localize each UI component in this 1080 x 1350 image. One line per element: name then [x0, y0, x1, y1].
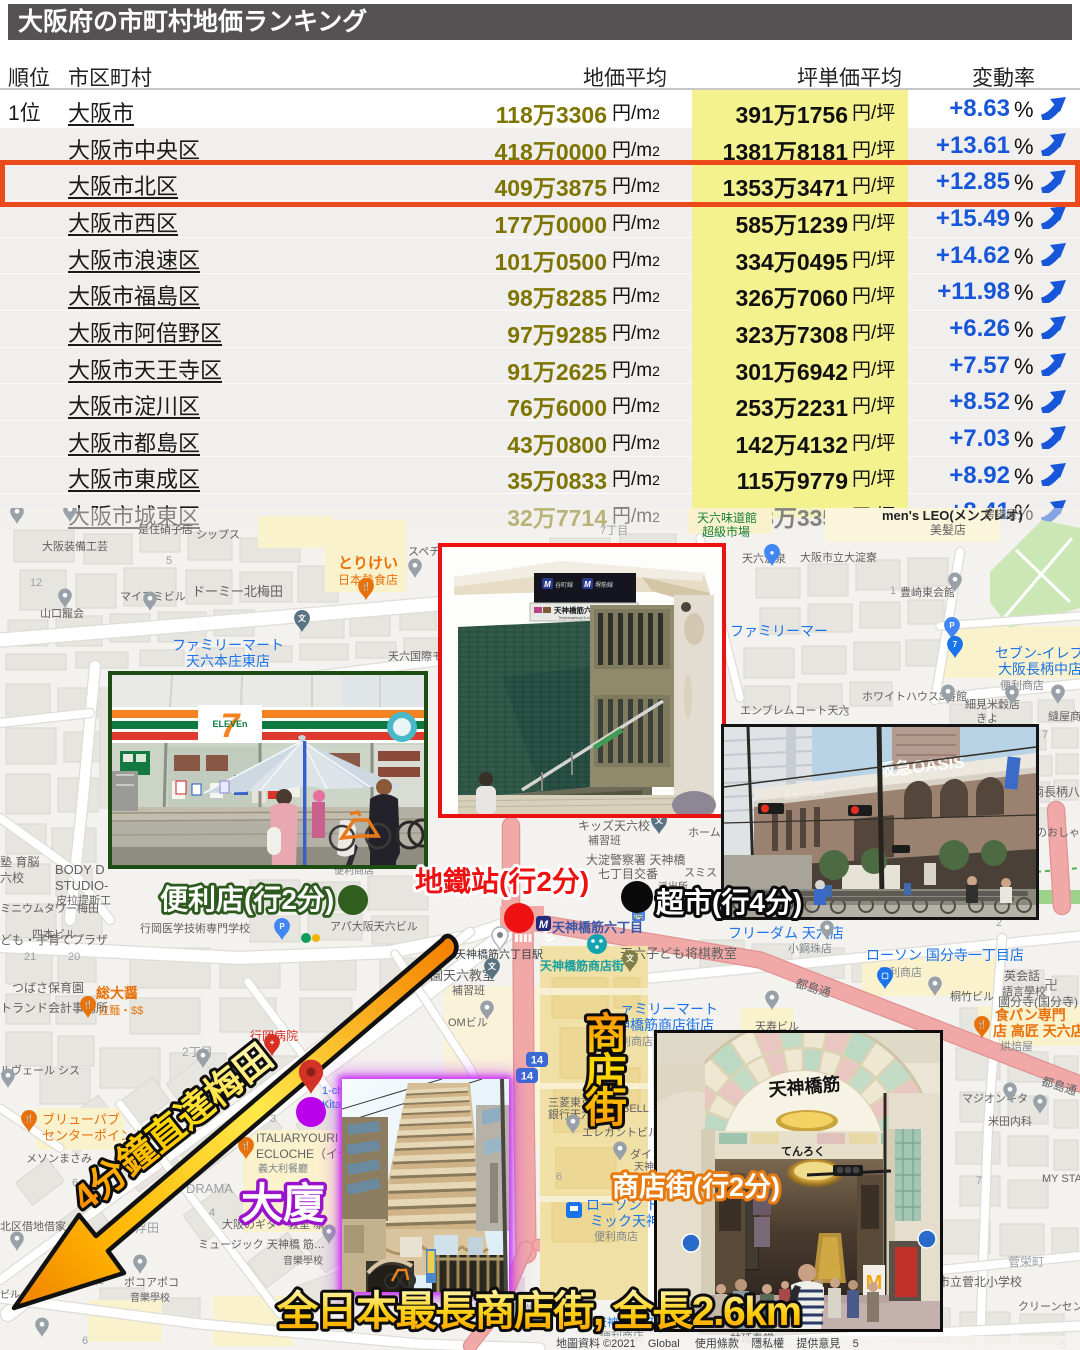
svg-text:派出所: 派出所: [658, 880, 688, 893]
svg-text:5: 5: [1060, 1339, 1066, 1350]
svg-text:文: 文: [626, 953, 634, 963]
svg-text:縫屋商店: 縫屋商店: [1048, 709, 1080, 723]
svg-text:▢: ▢: [881, 971, 888, 980]
svg-text:ミュージック 天神橋 筋…: ミュージック 天神橋 筋…: [198, 1237, 325, 1251]
svg-text:20: 20: [68, 951, 80, 963]
svg-text:両長柄八幡: 両長柄八幡: [1032, 784, 1080, 799]
svg-text:BELL: BELL: [622, 1103, 649, 1115]
svg-text:大阪装備工芸: 大阪装備工芸: [42, 539, 108, 553]
svg-text:義大利餐廳: 義大利餐廳: [258, 1162, 308, 1175]
svg-text:大阪のギター教室 凛: 大阪のギター教室 凛: [222, 1217, 324, 1231]
svg-text:卍: 卍: [1044, 977, 1058, 993]
svg-text:スミス: スミス: [684, 867, 717, 879]
svg-text:ども・子育てプラザ: ども・子育てプラザ: [0, 932, 108, 947]
svg-text:烘焙屋: 烘焙屋: [1000, 1039, 1033, 1053]
svg-text:天六本庄東店: 天六本庄東店: [186, 653, 270, 669]
svg-text:クリーンセン…: クリーンセン…: [1018, 1300, 1080, 1313]
svg-text:3: 3: [843, 707, 849, 719]
svg-text:食パン専門: 食パン専門: [995, 1007, 1066, 1023]
svg-text:小鋼珠店: 小鋼珠店: [788, 941, 832, 955]
svg-text:7: 7: [1042, 729, 1048, 741]
svg-text:●: ●: [770, 548, 775, 557]
svg-text:つばさ保育園: つばさ保育園: [12, 980, 84, 995]
svg-text:6: 6: [82, 1335, 88, 1347]
svg-text:超級市場: 超級市場: [702, 524, 750, 539]
svg-text:三菱東京UF: 三菱東京UF: [548, 1095, 607, 1109]
svg-text:天神橋筋六丁目: 天神橋筋六丁目: [552, 920, 643, 935]
svg-text:P: P: [279, 922, 284, 931]
svg-text:文: 文: [298, 613, 306, 623]
svg-text:豊崎東会館: 豊崎東会館: [900, 585, 955, 599]
svg-text:大阪長柄中店: 大阪長柄中店: [998, 661, 1080, 677]
svg-text:是住硝子店: 是住硝子店: [138, 522, 193, 536]
svg-text:ファミリーマー: ファミリーマー: [730, 623, 828, 639]
svg-text:菅栄町: 菅栄町: [1008, 1255, 1044, 1269]
svg-text:1-ch: 1-ch: [322, 1085, 343, 1097]
svg-text:堺筋線: 堺筋線: [595, 581, 613, 589]
svg-text:キッズ天六校: キッズ天六校: [578, 818, 650, 833]
svg-text:14: 14: [531, 1055, 544, 1067]
svg-text:P: P: [949, 621, 954, 630]
svg-text:Kita: Kita: [322, 1099, 342, 1111]
svg-text:6: 6: [556, 1171, 562, 1183]
svg-text:🍴: 🍴: [24, 1113, 34, 1123]
svg-text:ブリューパブ: ブリューパブ: [42, 1112, 120, 1127]
svg-text:ファミリーマート: ファミリーマート: [172, 637, 284, 653]
svg-text:総大醤: 総大醤: [96, 985, 138, 1001]
svg-text:ポコアポコ: ポコアポコ: [124, 1276, 179, 1289]
svg-text:12: 12: [30, 577, 42, 589]
svg-text:アパ大阪天六ビル: アパ大阪天六ビル: [330, 919, 418, 933]
svg-text:マジオンキタ: マジオンキタ: [962, 1092, 1028, 1105]
svg-text:M: M: [539, 919, 549, 931]
svg-text:STUDIO-: STUDIO-: [55, 878, 108, 893]
svg-text:桐竹ビル: 桐竹ビル: [950, 989, 994, 1003]
svg-text:英会話: 英会話: [1004, 968, 1040, 983]
svg-text:とりけい: とりけい: [338, 555, 398, 572]
svg-text:皮拉提斯工: 皮拉提斯工: [56, 893, 111, 907]
svg-text:便利商店: 便利商店: [600, 1329, 644, 1343]
svg-text:🚌: 🚌: [633, 910, 644, 920]
svg-text:5: 5: [166, 555, 172, 567]
svg-text:利商店: 利商店: [620, 1034, 653, 1048]
svg-text:7: 7: [953, 640, 958, 649]
svg-text:+: +: [270, 1038, 275, 1047]
svg-text:7: 7: [976, 1175, 982, 1187]
svg-text:6: 6: [72, 1177, 78, 1189]
svg-text:大阪市立大淀寮: 大阪市立大淀寮: [800, 550, 877, 564]
svg-text:文: 文: [488, 961, 496, 971]
svg-text:浮田: 浮田: [135, 1221, 159, 1235]
svg-text:行岡医学技術専門学校: 行岡医学技術専門学校: [140, 921, 250, 935]
svg-text:MY STAG…: MY STAG…: [1042, 1173, 1080, 1185]
svg-text:便利商店: 便利商店: [594, 1229, 638, 1243]
svg-text:塾 育脳: 塾 育脳: [0, 854, 39, 869]
svg-text:大淀警察署 天神橋: 大淀警察署 天神橋: [586, 852, 685, 867]
svg-text:ビル: ビル: [0, 1289, 20, 1301]
svg-text:天神橋筋商店街: 天神橋筋商店街: [540, 958, 624, 973]
svg-text:音樂學校: 音樂學校: [283, 1254, 323, 1267]
svg-text:🍴: 🍴: [361, 581, 371, 591]
svg-text:米田内科: 米田内科: [988, 1114, 1032, 1128]
svg-text:のおしゃれ館: のおしゃれ館: [1036, 825, 1080, 839]
svg-text:センターポイント /…: センターポイント /…: [42, 1128, 166, 1143]
svg-text:OMビル: OMビル: [448, 1016, 488, 1029]
svg-text:美髪店: 美髪店: [930, 523, 966, 537]
svg-text:🍴: 🍴: [977, 1019, 987, 1029]
svg-text:補習班: 補習班: [588, 834, 621, 847]
svg-text:天神橋: 天神橋: [521, 1293, 534, 1323]
svg-text:谷町線: 谷町線: [555, 581, 573, 589]
svg-text:セブン-イレブン: セブン-イレブン: [995, 645, 1080, 661]
svg-text:七丁目交番: 七丁目交番: [598, 866, 658, 881]
svg-text:M: M: [544, 580, 551, 589]
svg-text:4: 4: [209, 1207, 215, 1219]
svg-text:BODY D: BODY D: [55, 862, 105, 877]
svg-text:M: M: [584, 580, 591, 589]
svg-text:🍴: 🍴: [83, 999, 93, 1009]
svg-text:浮田1: 浮田1: [76, 1274, 104, 1287]
svg-text:🍴: 🍴: [241, 1140, 251, 1150]
svg-text:補習班: 補習班: [452, 984, 485, 997]
svg-text:メソンまさみ: メソンまさみ: [26, 1152, 92, 1165]
svg-text:北区借地借家: 北区借地借家: [0, 1219, 66, 1233]
svg-text:1: 1: [890, 585, 896, 597]
svg-text:ドーミー北梅田: ドーミー北梅田: [192, 584, 283, 599]
svg-text:ローソン 国分寺一丁目店: ローソン 国分寺一丁目店: [866, 947, 1024, 963]
svg-text:房塔屋: 房塔屋: [984, 508, 1017, 521]
svg-text:7丁目: 7丁目: [600, 525, 628, 537]
svg-text:DRAMA: DRAMA: [186, 1181, 233, 1196]
svg-text:ELEVEn: ELEVEn: [212, 719, 247, 729]
svg-text:エンブレムコート天六: エンブレムコート天六: [740, 703, 849, 717]
svg-text:山口寵会: 山口寵会: [40, 606, 84, 620]
svg-text:21: 21: [24, 951, 36, 963]
svg-text:音樂學校: 音樂學校: [130, 1291, 170, 1304]
svg-text:ァミリーマート: ァミリーマート: [620, 1001, 718, 1017]
svg-text:六校: 六校: [0, 870, 24, 885]
svg-text:14: 14: [521, 1071, 534, 1083]
svg-text:ITALIARYOURI: ITALIARYOURI: [256, 1131, 338, 1145]
svg-text:店 高匠 天六店: 店 高匠 天六店: [993, 1023, 1080, 1039]
svg-text:てんろく: てんろく: [781, 1145, 825, 1158]
svg-text:天六味道館: 天六味道館: [697, 510, 757, 525]
svg-text:市立菅北小学校: 市立菅北小学校: [938, 1274, 1022, 1289]
svg-text:シップス: シップス: [196, 528, 240, 541]
svg-text:3: 3: [270, 1113, 276, 1125]
